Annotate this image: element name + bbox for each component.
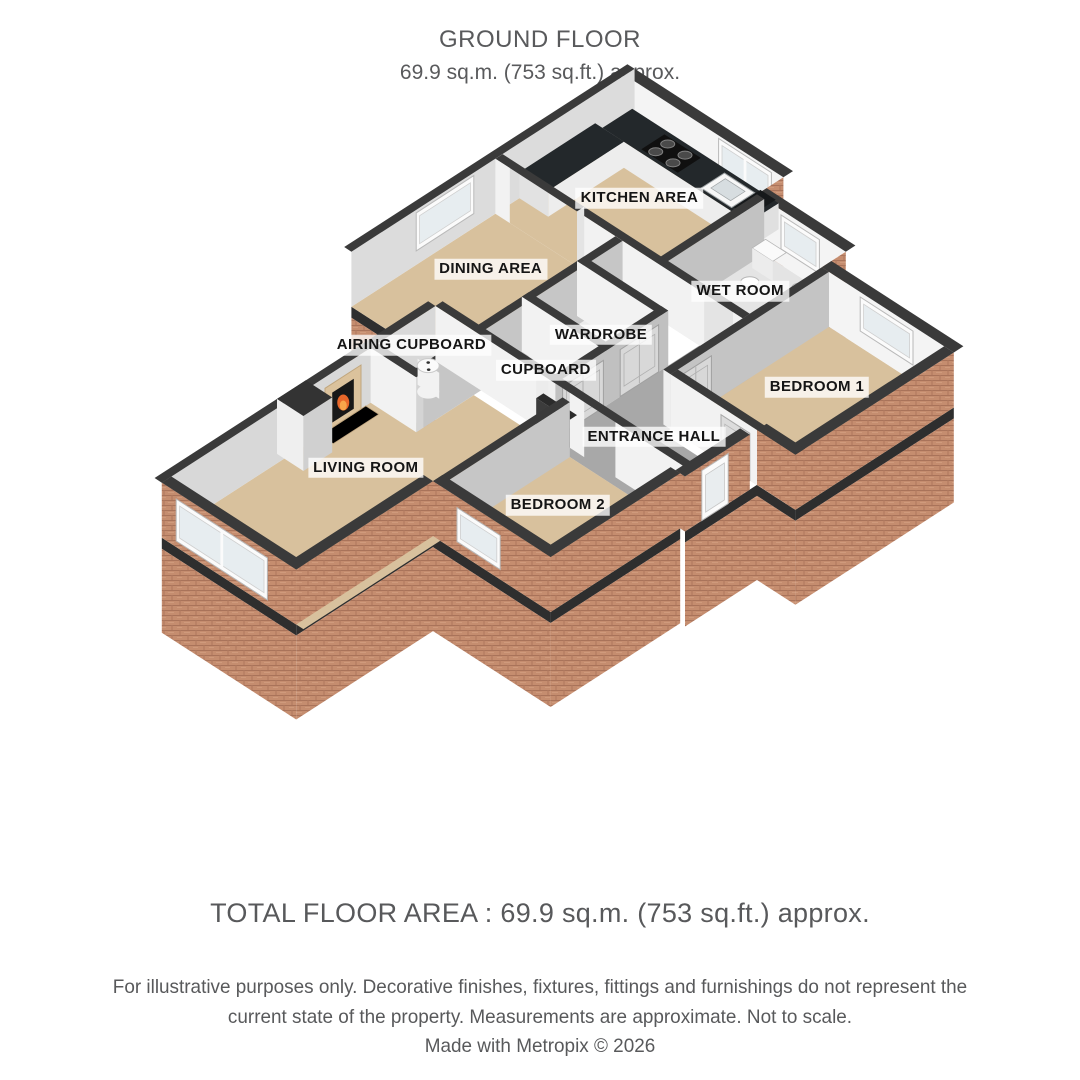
- disclaimer-body: For illustrative purposes only. Decorati…: [113, 976, 967, 1028]
- metropix-credit: Made with Metropix © 2026: [425, 1035, 656, 1057]
- total-floor-area: TOTAL FLOOR AREA : 69.9 sq.m. (753 sq.ft…: [0, 898, 1080, 929]
- disclaimer-text: For illustrative purposes only. Decorati…: [94, 973, 986, 1062]
- floorplan-page: GROUND FLOOR 69.9 sq.m. (753 sq.ft.) app…: [0, 0, 1080, 1080]
- plan-footer: TOTAL FLOOR AREA : 69.9 sq.m. (753 sq.ft…: [0, 898, 1080, 1062]
